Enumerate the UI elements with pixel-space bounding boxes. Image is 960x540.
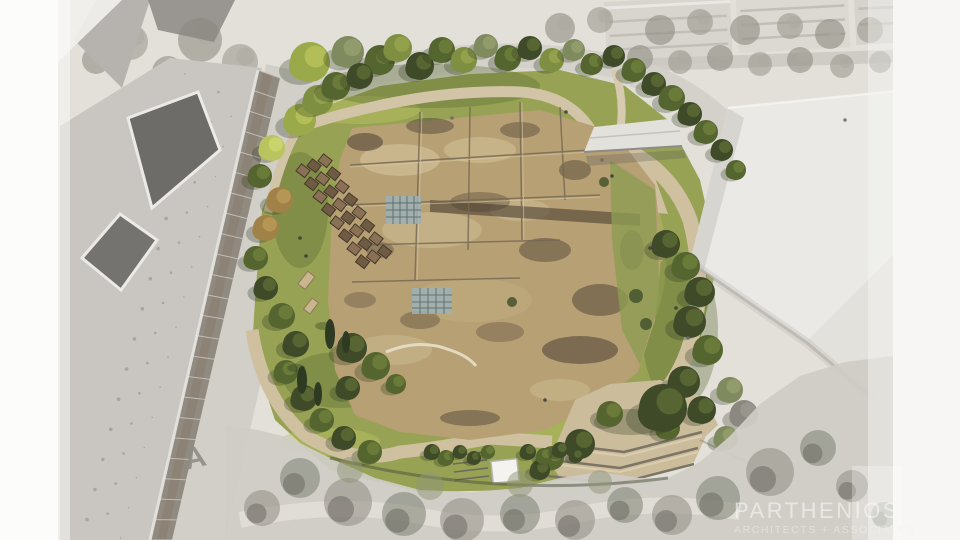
aerial-rendering: A bbox=[0, 0, 960, 540]
white-band-left bbox=[0, 0, 58, 540]
scene-canvas: A bbox=[0, 0, 960, 540]
white-band-right bbox=[893, 0, 960, 540]
